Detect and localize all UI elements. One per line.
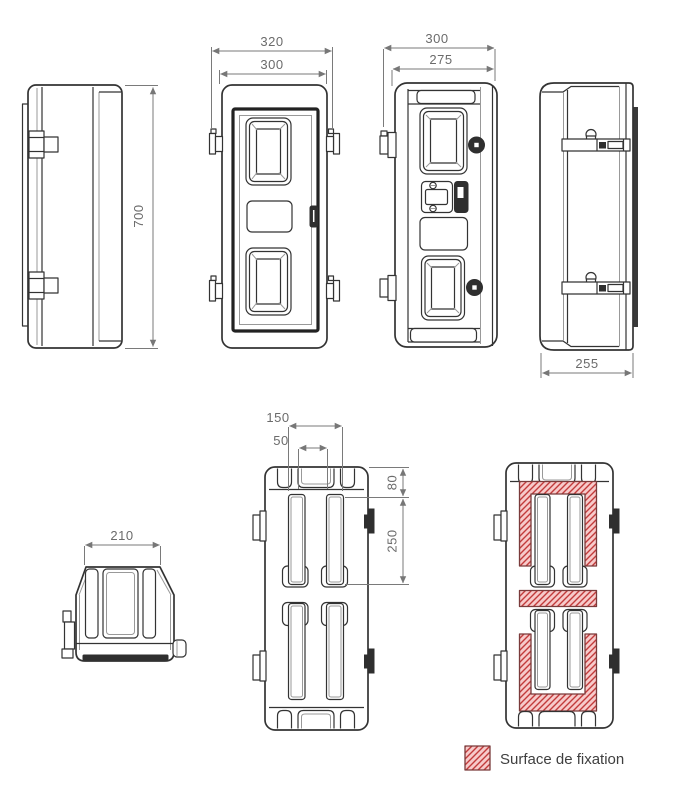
legend-label: Surface de fixation (500, 751, 624, 768)
dim-height: 700 (131, 204, 146, 227)
view-side-right: 255 (540, 83, 638, 378)
cabinet-body (265, 467, 368, 730)
dim-body-width: 300 (260, 57, 283, 72)
top-vent-band (417, 91, 475, 104)
fixation-surface-middle (520, 591, 597, 607)
door-latch (310, 206, 318, 227)
mount-bracket (494, 511, 507, 541)
top-notch (519, 465, 533, 484)
vent-rib (86, 569, 99, 638)
view-three-quarter: 300 275 (380, 31, 497, 347)
dim-slot-gap: 50 (273, 433, 288, 448)
vent-rib (103, 569, 138, 638)
top-notch (278, 469, 292, 488)
mount-bracket (327, 129, 340, 154)
top-notch (582, 465, 596, 484)
top-notch (298, 469, 334, 488)
dim-door-width: 275 (429, 52, 452, 67)
dim-top-width: 210 (110, 528, 133, 543)
front-lip (83, 655, 168, 660)
latch-assembly (422, 182, 469, 213)
bottom-notch (539, 712, 575, 727)
bottom-notch (278, 711, 292, 729)
cabinet-technical-drawing: 700 (0, 0, 700, 800)
bottom-vent-band (411, 329, 477, 343)
vent-rib (143, 569, 156, 638)
dim-slot-span: 150 (266, 410, 289, 425)
dim-outer-width: 320 (260, 34, 283, 49)
mount-bracket (380, 276, 396, 301)
top-notch (539, 465, 575, 484)
latch-edge (62, 611, 75, 658)
hinge-tab (173, 640, 186, 657)
dim-outer-width: 300 (425, 31, 448, 46)
lock-knob (469, 137, 485, 153)
dim-top-offset: 80 (385, 475, 400, 490)
recessed-handle-top (420, 108, 467, 174)
recessed-handle-bottom (246, 248, 291, 315)
technical-drawing-page: 700 (0, 0, 700, 800)
view-side-left: 700 (23, 85, 159, 349)
dim-slot-height: 250 (385, 529, 400, 552)
label-plate (247, 201, 292, 232)
view-fixation (494, 463, 619, 728)
view-front: 320 300 (210, 34, 340, 348)
legend-hatch-swatch (465, 746, 490, 770)
bottom-notch (582, 712, 596, 727)
mount-bracket (494, 651, 507, 681)
bottom-notch (341, 711, 355, 729)
lock-knob (467, 280, 483, 296)
mount-bracket (327, 276, 340, 301)
bottom-notch (298, 711, 334, 729)
mount-bracket (380, 131, 396, 158)
bottom-notch (519, 712, 533, 727)
mount-bracket (253, 511, 266, 541)
recessed-handle-top (246, 118, 291, 185)
view-top: 210 (62, 528, 186, 661)
mount-bracket (210, 276, 223, 301)
legend: Surface de fixation (465, 746, 624, 770)
view-back: 150 50 80 250 (253, 410, 409, 730)
dim-depth: 255 (575, 356, 598, 371)
mount-bracket (210, 129, 223, 154)
recessed-handle-bottom (422, 256, 465, 320)
mount-bracket (253, 651, 266, 681)
label-plate (420, 218, 468, 251)
